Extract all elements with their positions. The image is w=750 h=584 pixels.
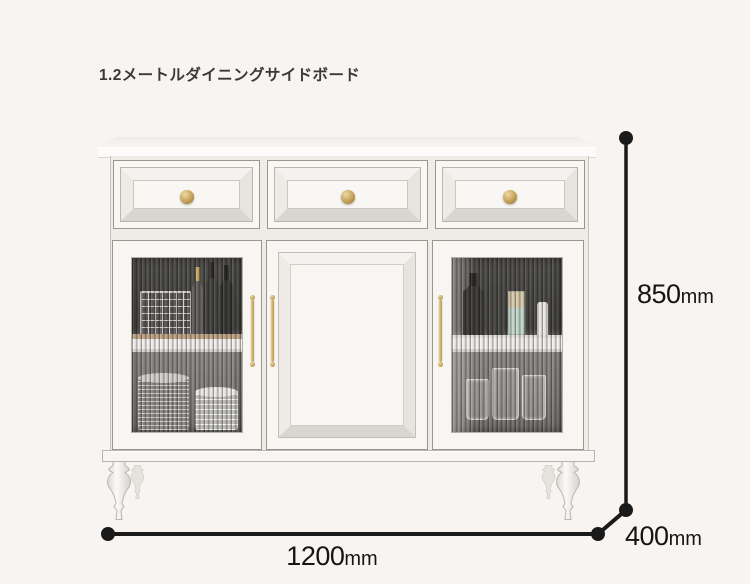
depth-unit: mm	[669, 528, 702, 550]
door-panel-bevel	[279, 253, 415, 437]
cabinet-leg-front-right	[553, 461, 583, 520]
dimension-endpoint-dot	[591, 527, 605, 541]
glass-door-left	[112, 240, 262, 450]
fluted-glass-panel-right	[452, 258, 562, 432]
width-dimension-label: 1200mm	[262, 541, 402, 572]
fluted-glass-panel-left	[132, 258, 242, 432]
depth-dimension-label: 400mm	[625, 521, 702, 552]
glass-door-right	[432, 240, 584, 450]
depth-dimension-line	[598, 510, 626, 534]
door-handle-right	[436, 294, 445, 368]
product-title: 1.2メートルダイニングサイドボード	[99, 63, 360, 85]
solid-door-center	[266, 240, 428, 450]
dimension-endpoint-dot	[619, 503, 633, 517]
depth-value: 400	[625, 521, 669, 551]
height-unit: mm	[681, 286, 714, 308]
product-dimension-diagram: 1.2メートルダイニングサイドボード	[0, 0, 750, 584]
width-unit: mm	[344, 548, 377, 570]
drawer-knob-right	[503, 190, 517, 204]
cabinet-leg-front-left	[104, 461, 134, 520]
width-value: 1200	[286, 541, 344, 571]
drawer-center	[267, 160, 428, 229]
drawer-knob-center	[341, 190, 355, 204]
drawer-right	[435, 160, 585, 229]
fluted-glass-texture	[452, 258, 562, 432]
height-dimension-label: 850mm	[637, 279, 714, 310]
fluted-glass-texture	[132, 258, 242, 432]
dimension-endpoint-dot	[101, 527, 115, 541]
cabinet-base-rail	[102, 450, 595, 462]
drawer-left	[113, 160, 260, 229]
drawer-knob-left	[180, 190, 194, 204]
door-handle-center	[268, 294, 277, 368]
height-value: 850	[637, 279, 681, 309]
door-handle-left	[248, 294, 257, 368]
dimension-endpoint-dot	[619, 131, 633, 145]
